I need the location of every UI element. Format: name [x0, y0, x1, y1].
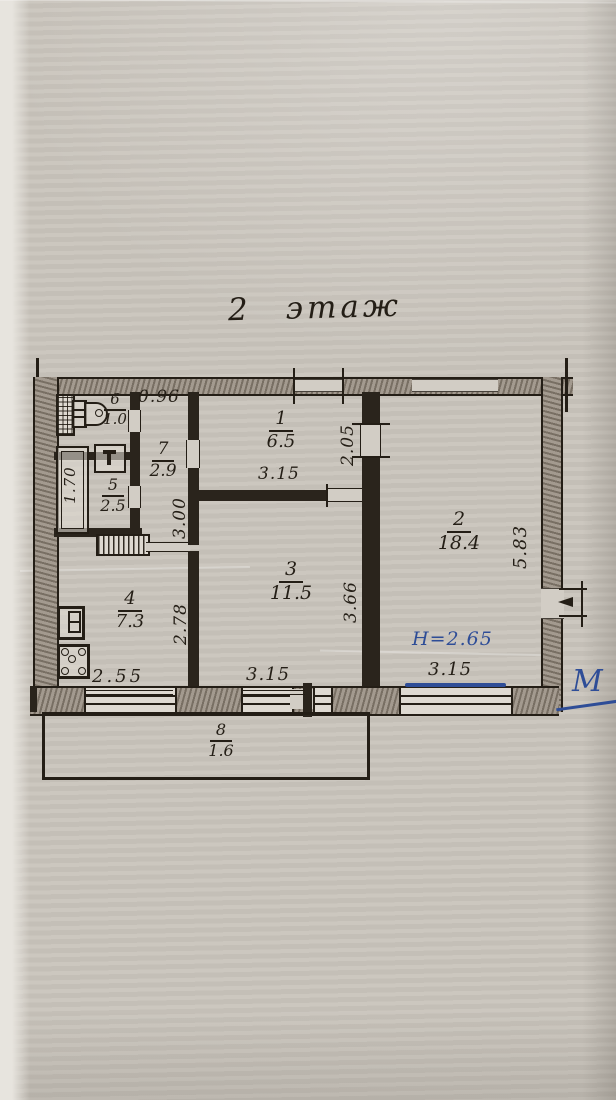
room-5-area: 2.5: [96, 497, 130, 515]
paper-crease: [0, 0, 616, 1]
balcony-outline: [42, 712, 370, 780]
washbasin-icon: [94, 444, 126, 473]
ceiling-height-note: Н=2.65: [412, 628, 493, 650]
room-2-area: 18.4: [432, 533, 486, 554]
room-5-number: 5: [102, 477, 124, 497]
room-2-number: 2: [447, 510, 471, 533]
stove-burner: [78, 667, 86, 675]
dim-kitchen-depth: 2.78: [171, 595, 191, 653]
room-6-area: 1.0: [98, 411, 132, 428]
dim-room3-window-width: 3.15: [246, 664, 290, 685]
dim-bathtub-length: 1.70: [61, 457, 79, 513]
top-wall-opening: [412, 379, 498, 392]
room2-window: [399, 686, 513, 716]
room-1-number: 1: [269, 410, 292, 432]
room-7-label: 7 2.9: [144, 441, 182, 481]
dimension-tick: [342, 368, 344, 404]
room-3-label: 3 11.5: [264, 560, 318, 604]
dim-room1-width: 3.15: [258, 464, 300, 484]
room-6-number: 6: [104, 392, 126, 411]
paper-crease: [320, 649, 560, 656]
dimension-tick: [326, 484, 328, 507]
dimension-tick: [293, 368, 295, 404]
dimension-underline: [243, 690, 305, 695]
floor-title: 2 этаж: [228, 288, 403, 329]
room-6-label: 6 1.0: [98, 392, 132, 428]
kitchen-sink-basin: [68, 611, 81, 633]
room-3-number: 3: [279, 560, 303, 583]
washbasin-faucet-stem: [107, 453, 111, 465]
room-3-area: 11.5: [264, 583, 318, 604]
room-5-label: 5 2.5: [96, 477, 130, 515]
margin-signature: М: [572, 664, 603, 699]
room3-door-opening: [327, 488, 362, 502]
room-4-number: 4: [118, 590, 141, 612]
dim-room2-depth: 5.83: [510, 516, 532, 578]
balcony-door-arrow-icon: [558, 597, 573, 607]
dimension-underline: [84, 690, 173, 695]
stove-burner: [61, 648, 69, 656]
dimension-tick: [565, 358, 568, 412]
entrance-door-opening: [293, 379, 343, 392]
room-4-area: 7.3: [108, 612, 152, 632]
dim-corridor-width: 0.96: [138, 387, 180, 407]
margin-signature-stroke: [556, 700, 616, 711]
room-7-area: 2.9: [144, 462, 182, 481]
dim-corridor-length: 3.00: [170, 490, 190, 546]
dim-room3-depth: 3.66: [341, 573, 361, 631]
stove-burner: [68, 655, 76, 663]
stove-burner: [61, 667, 69, 675]
room-2-label: 2 18.4: [432, 510, 486, 554]
stove-burner: [78, 648, 86, 656]
scanned-floor-plan-page: 2 этаж: [0, 0, 616, 1100]
room-1-label: 1 6.5: [258, 410, 304, 452]
dim-room2-window-width: 3.15: [428, 659, 472, 680]
dim-room1-depth: 2.05: [338, 417, 360, 473]
room-1-area: 6.5: [258, 432, 304, 452]
right-exterior-wall: [541, 377, 563, 712]
kitchen-sink-icon: [57, 606, 85, 640]
wall-end-cap: [30, 686, 37, 712]
room2-door-opening: [360, 425, 381, 458]
vent-block-icon: [96, 534, 150, 556]
dim-kitchen-window-width: 2.55: [92, 666, 144, 687]
stove-icon: [57, 644, 90, 679]
corridor-door-opening: [186, 440, 200, 468]
room-7-number: 7: [152, 441, 175, 462]
blue-dimension-underline: [405, 683, 506, 687]
paper-crease: [0, 0, 616, 3]
dimension-tick: [581, 581, 583, 627]
room-4-label: 4 7.3: [108, 590, 152, 632]
